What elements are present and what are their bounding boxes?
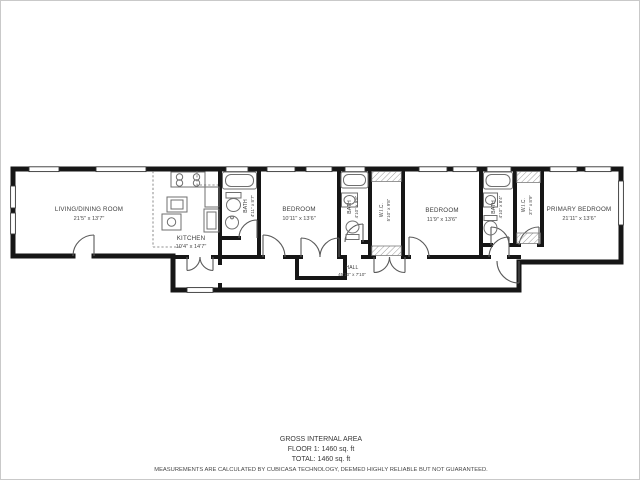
room-dims: 10'11" x 13'6"	[282, 216, 315, 222]
floor-area-line: FLOOR 1: 1460 sq. ft	[288, 446, 355, 453]
kitchen-sink	[162, 214, 181, 230]
room-dims: 5'10" x 9'8"	[386, 198, 391, 221]
bathtub	[223, 172, 257, 189]
bath3-door	[491, 227, 509, 245]
room-dims: 11'9" x 13'6"	[427, 217, 457, 223]
total-area-line: TOTAL: 1460 sq. ft	[292, 456, 351, 463]
label-bath-1: BATH 4'11" x 8'7"	[243, 194, 255, 217]
room-dims: 4'10" x 9'8"	[354, 195, 359, 218]
floor-plan-drawing: LIVING/DINING ROOM 21'5" x 13'7" KITCHEN…	[1, 1, 640, 480]
room-dims: 4'11" x 8'7"	[250, 194, 255, 217]
room-name: LIVING/DINING ROOM	[55, 206, 123, 213]
bath1-door	[239, 220, 257, 238]
vestibule-double-door	[187, 257, 213, 271]
cabinet	[205, 187, 219, 207]
dishwasher	[167, 197, 187, 212]
gross-internal-area-title: GROSS INTERNAL AREA	[280, 436, 363, 443]
footer: GROSS INTERNAL AREA FLOOR 1: 1460 sq. ft…	[154, 436, 488, 473]
label-hall: HALL 45'10" x 7'10"	[338, 265, 366, 277]
room-name: BATH	[347, 200, 353, 214]
living-door	[73, 235, 94, 256]
entry-opening	[187, 288, 213, 293]
wic2-shelf-bottom	[517, 233, 541, 244]
room-dims: 21'5" x 13'7"	[74, 216, 105, 222]
floor-plan-page: LIVING/DINING ROOM 21'5" x 13'7" KITCHEN…	[0, 0, 640, 480]
hall-closet-doors	[374, 257, 405, 273]
room-name: KITCHEN	[177, 235, 206, 242]
room-name: BATH	[491, 200, 497, 214]
disclaimer-line: MEASUREMENTS ARE CALCULATED BY CUBICASA …	[154, 467, 488, 473]
label-kitchen: KITCHEN 10'4" x 14'7"	[176, 235, 207, 250]
room-name: BATH	[243, 199, 249, 213]
toilet	[226, 193, 241, 212]
bedroom1-closet-doors	[301, 238, 339, 257]
label-wic-1: W.I.C. 5'10" x 9'8"	[379, 198, 391, 221]
room-name: HALL	[346, 265, 359, 271]
bedroom1-door	[263, 235, 285, 257]
label-primary-bedroom: PRIMARY BEDROOM 21'11" x 13'6"	[547, 206, 612, 222]
bathtub	[341, 172, 368, 188]
sink	[226, 216, 239, 229]
label-bedroom-2: BEDROOM 11'9" x 13'6"	[425, 207, 458, 223]
primary-door	[489, 237, 509, 257]
room-dims: 10'4" x 14'7"	[176, 244, 207, 250]
room-name: W.I.C.	[521, 198, 527, 212]
label-living-dining-room: LIVING/DINING ROOM 21'5" x 13'7"	[55, 206, 123, 222]
doors	[73, 220, 539, 283]
fridge	[204, 209, 219, 232]
wic1-shelf-top	[372, 172, 402, 182]
wic2-shelf-top	[517, 172, 541, 183]
wic1-shelf-bottom	[372, 246, 402, 256]
toilet	[346, 221, 359, 240]
room-name: BEDROOM	[282, 206, 315, 213]
room-dims: 45'10" x 7'10"	[338, 272, 366, 277]
windows	[11, 167, 624, 293]
hall-door	[497, 261, 519, 283]
room-dims: 21'11" x 13'6"	[562, 216, 595, 222]
bedroom2-door	[409, 237, 429, 257]
room-dims: 3'7" x 8'9"	[528, 195, 533, 215]
room-name: W.I.C.	[379, 203, 385, 217]
label-bedroom-1: BEDROOM 10'11" x 13'6"	[282, 206, 315, 222]
label-wic-2: W.I.C. 3'7" x 8'9"	[521, 195, 533, 215]
room-name: BEDROOM	[425, 207, 458, 214]
room-dims: 4'10" x 8'4"	[498, 195, 503, 218]
room-name: PRIMARY BEDROOM	[547, 206, 612, 213]
bathtub	[484, 172, 513, 189]
